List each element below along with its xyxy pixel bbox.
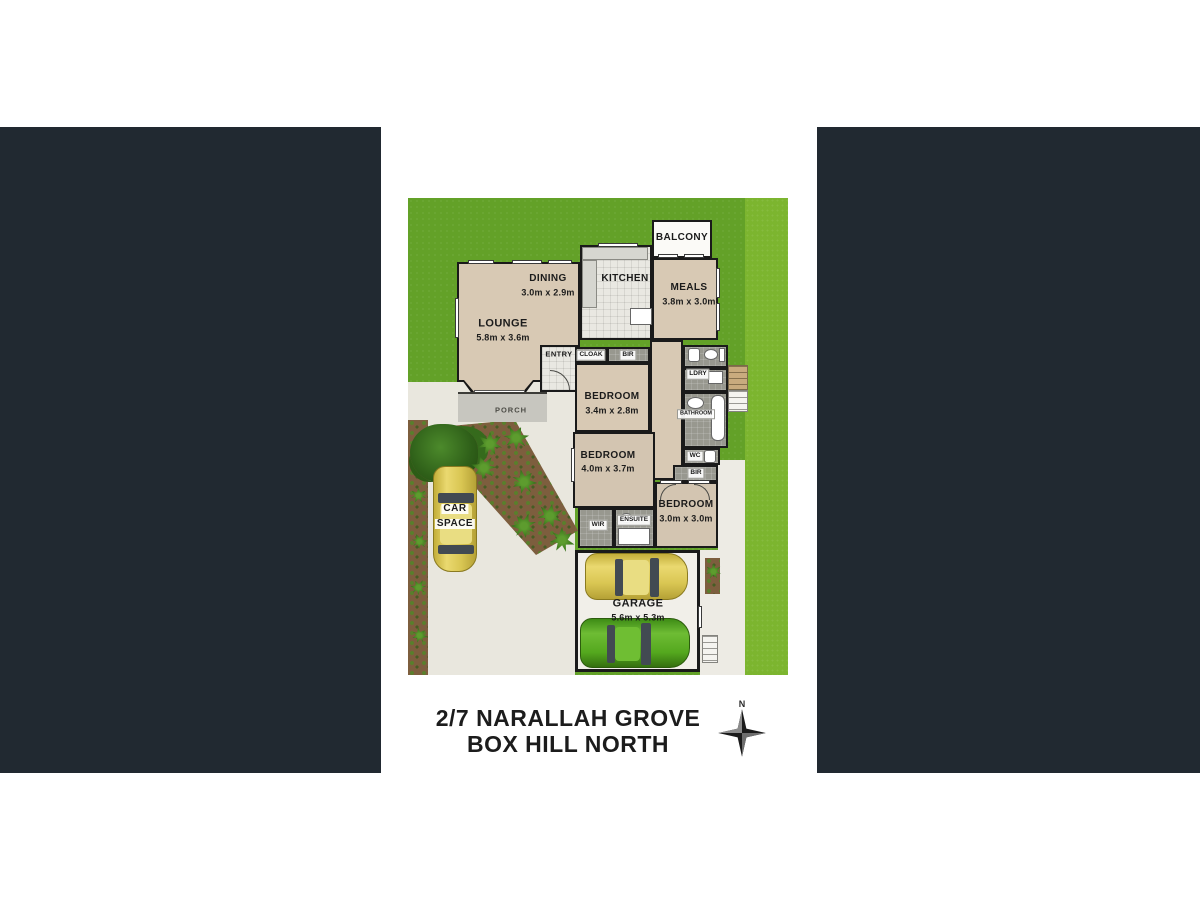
label-bathroom: BATHROOM [677, 409, 715, 419]
label-garage-dims: 5.6m x 5.3m [611, 614, 664, 623]
label-car-space-1: CAR [441, 504, 468, 514]
basin-icon [704, 349, 718, 360]
garage-car-green [580, 618, 690, 668]
window [571, 448, 575, 482]
garden-bed-rear [705, 558, 720, 594]
address-line-1: 2/7 NARALLAH GROVE [408, 705, 728, 731]
compass-north-label: N [714, 700, 770, 708]
label-meals-dims: 3.8m x 3.0m [662, 298, 715, 307]
label-bedroom1: BEDROOM [584, 392, 639, 402]
window [468, 260, 494, 264]
floor-plan-image: LOUNGE 5.8m x 3.6m DINING 3.0m x 2.9m KI… [408, 198, 788, 675]
window [548, 260, 572, 264]
window [716, 268, 720, 298]
rear-steps-upper [728, 365, 748, 390]
compass-star-icon [717, 708, 767, 758]
label-ensuite: ENSUITE [617, 515, 651, 526]
label-bir-hall: BIR [619, 350, 636, 361]
label-dining: DINING [529, 274, 566, 284]
label-porch: PORCH [495, 406, 527, 414]
toilet-icon [688, 348, 700, 362]
right-mask-panel [817, 127, 1200, 773]
label-bedroom3-dims: 3.0m x 3.0m [659, 515, 712, 524]
window [688, 480, 710, 484]
address-line-2: BOX HILL NORTH [408, 731, 728, 757]
kitchen-bench [582, 260, 597, 308]
lawn-right-strip [745, 198, 788, 675]
label-bir-rear: BIR [687, 468, 704, 479]
window [512, 260, 542, 264]
label-garage: GARAGE [613, 599, 664, 610]
address-title: 2/7 NARALLAH GROVE BOX HILL NORTH [408, 705, 728, 757]
label-wc: WC [687, 451, 704, 462]
label-wir: WIR [589, 520, 608, 531]
basin-icon [687, 397, 704, 409]
label-entry: ENTRY [545, 350, 572, 358]
garage-side-steps [702, 635, 718, 663]
label-kitchen: KITCHEN [601, 274, 648, 284]
left-mask-panel [0, 127, 381, 773]
page: LOUNGE 5.8m x 3.6m DINING 3.0m x 2.9m KI… [0, 0, 1200, 900]
label-bedroom2: BEDROOM [580, 451, 635, 461]
kitchen-bench [582, 247, 648, 260]
label-lounge-dims: 5.8m x 3.6m [476, 334, 529, 343]
label-balcony: BALCONY [656, 233, 708, 243]
label-bedroom1-dims: 3.4m x 2.8m [585, 407, 638, 416]
label-cloak: CLOAK [576, 350, 605, 361]
label-car-space-2: SPACE [435, 519, 475, 529]
compass-rose: N [714, 700, 770, 763]
toilet-icon [704, 450, 716, 463]
label-ldry: LDRY [686, 369, 709, 380]
window [658, 254, 678, 258]
side-path [718, 460, 745, 550]
label-dining-dims: 3.0m x 2.9m [521, 289, 574, 298]
window [684, 254, 704, 258]
label-lounge: LOUNGE [478, 319, 527, 330]
appliance-icon [630, 308, 652, 325]
shower-icon [618, 528, 650, 545]
label-meals: MEALS [671, 283, 708, 293]
rear-steps-lower [728, 390, 748, 412]
window [716, 303, 720, 331]
label-bedroom2-dims: 4.0m x 3.7m [581, 465, 634, 474]
label-bedroom3: BEDROOM [658, 500, 713, 510]
cistern-icon [719, 348, 725, 362]
garage-side-door [698, 606, 702, 628]
laundry-trough-icon [708, 371, 723, 384]
window [660, 480, 682, 484]
garage-car-yellow [585, 553, 688, 600]
window [455, 298, 459, 338]
